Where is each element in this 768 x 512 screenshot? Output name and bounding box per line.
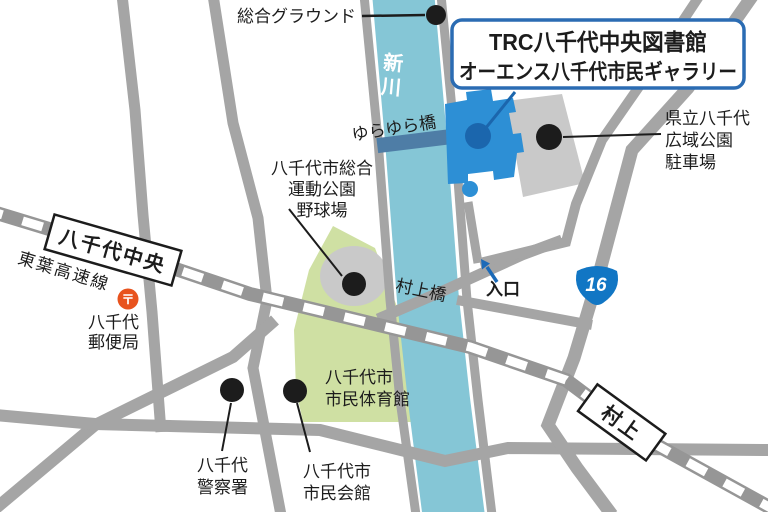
route16-number: 16	[585, 275, 607, 296]
label-gym-1: 八千代市	[325, 368, 393, 387]
label-sports-park-3: 野球場	[297, 201, 348, 220]
label-sports-park-1: 八千代市総合	[271, 159, 373, 178]
label-sports-park-2: 運動公園	[288, 180, 356, 199]
label-parking-3: 駐車場	[665, 153, 716, 172]
label-gym-2: 市民体育館	[325, 390, 410, 409]
dot-sogo-ground	[426, 5, 446, 25]
label-police-1: 八千代	[197, 456, 248, 475]
label-parking-2: 広域公園	[665, 131, 733, 150]
title-line2: オーエンス八千代市民ギャラリー	[459, 60, 737, 84]
label-police-2: 警察署	[197, 478, 248, 497]
title-line1: TRC八千代中央図書館	[489, 29, 707, 55]
label-post-office-1: 八千代	[88, 313, 139, 332]
label-sogo-ground: 総合グラウンド	[237, 7, 356, 26]
river-label-char1: 新	[382, 50, 404, 76]
label-entrance: 入口	[486, 280, 520, 299]
river-label-char2: 川	[379, 76, 402, 100]
leader-sogo-ground	[362, 15, 425, 16]
dot-baseball	[342, 272, 366, 296]
label-civic-hall-1: 八千代市	[303, 462, 371, 481]
map-screenshot: 八千代中央 村上 東葉高速線 新 川 ゆらゆら橋 村上橋 総合グラウンド 県立八…	[0, 0, 768, 512]
dot-police	[220, 378, 244, 402]
dot-civic-hall	[283, 379, 307, 403]
map-canvas: 八千代中央 村上 東葉高速線 新 川 ゆらゆら橋 村上橋 総合グラウンド 県立八…	[0, 0, 768, 512]
label-civic-hall-2: 市民会館	[303, 484, 371, 503]
dot-parking	[536, 124, 562, 150]
label-parking-1: 県立八千代	[665, 109, 750, 128]
library-building-annex	[462, 181, 478, 197]
post-mark-icon: 〒	[121, 292, 134, 307]
label-post-office-2: 郵便局	[88, 333, 139, 352]
